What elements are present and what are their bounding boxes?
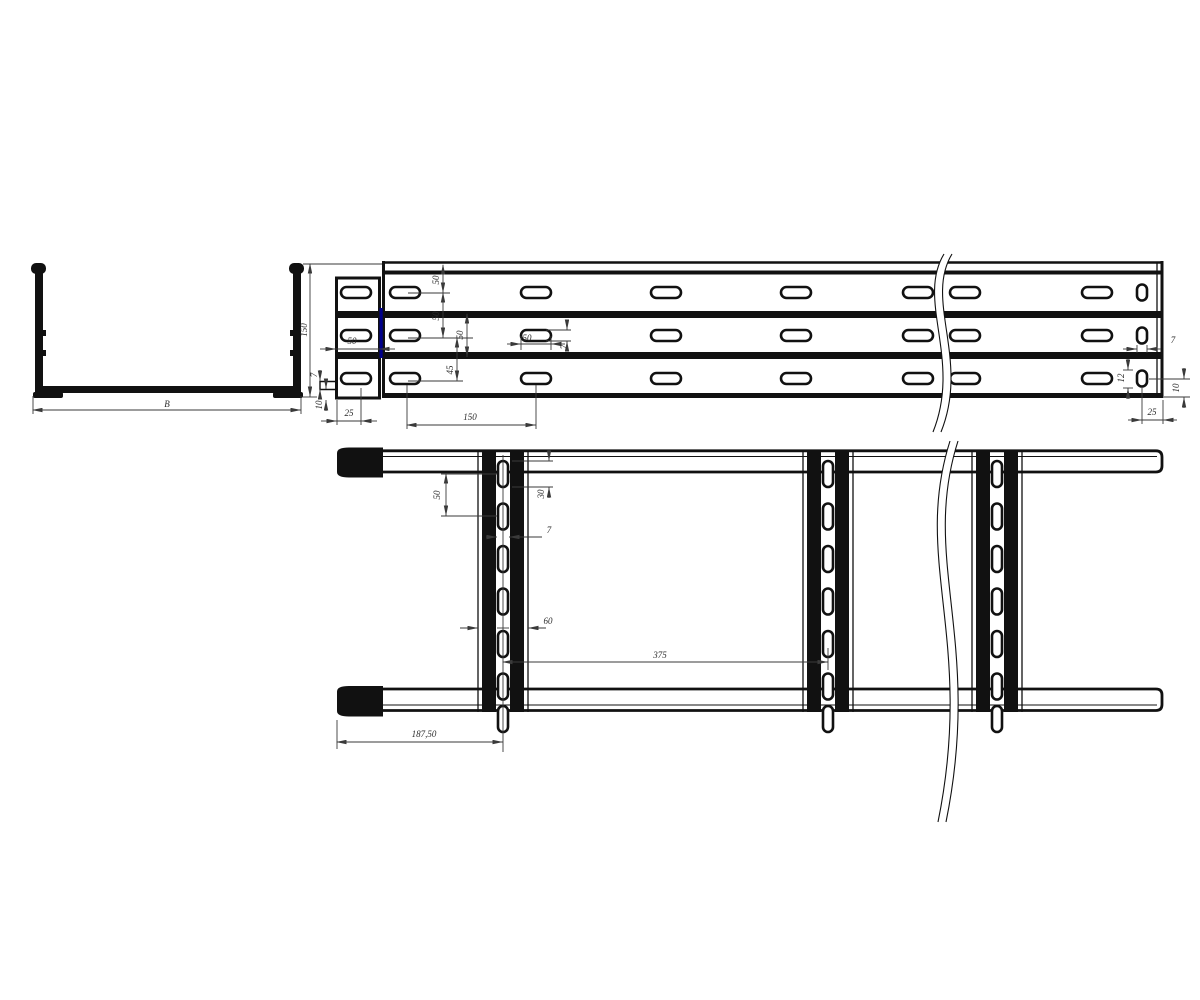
slot-row-top xyxy=(390,287,1112,298)
cross-section-view xyxy=(31,263,383,414)
dim-row2-spacing: 50 xyxy=(431,312,441,321)
dim-end-slot-height: 12 xyxy=(1116,374,1126,383)
drawing-linework xyxy=(0,0,1200,1000)
plan-view-dimensions xyxy=(337,450,828,749)
channel-bottom xyxy=(35,386,301,393)
dim-end-slot-bottom-offset: 10 xyxy=(1171,384,1181,393)
dim-section-width: B xyxy=(164,399,170,409)
side-rail-bottom xyxy=(337,686,1162,717)
dim-coupler-width: 50 xyxy=(348,336,357,346)
rung xyxy=(972,451,1022,732)
plan-view xyxy=(337,441,1162,822)
rail-fold-lower xyxy=(383,352,1163,359)
end-slot xyxy=(1137,285,1147,301)
dim-slot-length: 50 xyxy=(523,333,532,343)
slot-row-bottom xyxy=(390,373,1112,384)
dim-web-spacing: 50 xyxy=(455,331,465,340)
dim-end-slot-width: 7 xyxy=(1171,335,1176,345)
dim-row3-spacing: 45 xyxy=(445,366,455,375)
dim-rung-width: 60 xyxy=(544,616,553,626)
side-elevation-view xyxy=(320,254,1190,432)
dim-slot-width: 7 xyxy=(559,345,569,350)
dim-rung-slot-length: 30 xyxy=(536,490,546,499)
dim-end-slot-end-offset: 25 xyxy=(1148,407,1157,417)
side-view-dimensions xyxy=(320,265,1190,429)
end-slot xyxy=(1137,371,1147,387)
artifact-line xyxy=(380,308,383,358)
dim-first-rung-offset: 187,50 xyxy=(412,729,437,739)
dim-coupler-end-offset: 25 xyxy=(345,408,354,418)
break-line-plan xyxy=(937,441,958,822)
coupler-tab xyxy=(320,382,336,390)
slot-row-middle xyxy=(390,330,1112,341)
dim-rung-slot-width: 7 xyxy=(547,525,552,535)
dim-row1-offset: 50 xyxy=(431,276,441,285)
rail-fold-upper xyxy=(383,311,1163,318)
dim-slot-pitch: 150 xyxy=(463,412,477,422)
drawing-sheet: B 150 50 25 7 10 50 50 50 45 50 7 150 7 … xyxy=(0,0,1200,1000)
dim-coupler-tab-offset: 10 xyxy=(314,401,324,410)
dim-rung-pitch: 375 xyxy=(653,650,667,660)
break-line-side xyxy=(933,254,952,432)
end-slot xyxy=(1137,328,1147,344)
dim-section-height: 150 xyxy=(299,323,309,337)
side-rail-top xyxy=(337,448,1162,478)
rung xyxy=(803,451,853,732)
dim-rung-slot-pitch: 50 xyxy=(432,491,442,500)
side-wall-left xyxy=(35,285,43,387)
dim-coupler-tab-thickness: 7 xyxy=(309,373,319,378)
